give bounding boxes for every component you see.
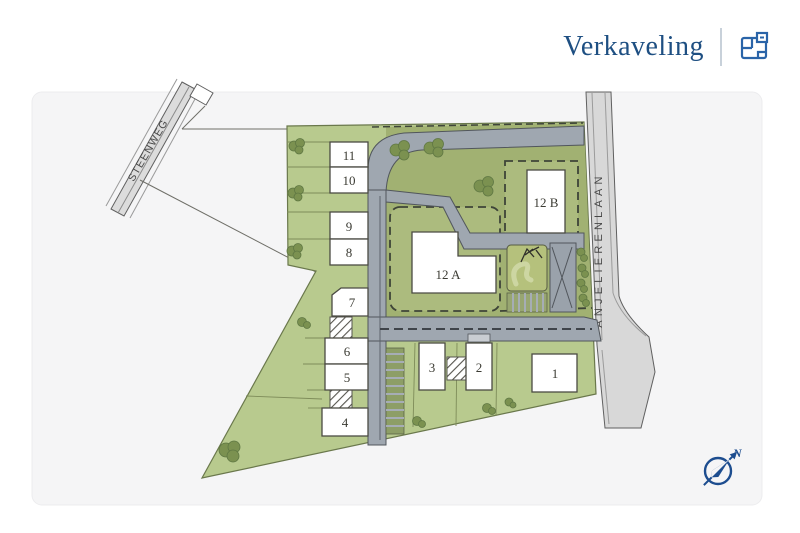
plot-label-12b: 12 B — [534, 195, 559, 210]
compass-north-label: N — [732, 446, 743, 460]
header: Verkaveling — [563, 28, 772, 66]
plot-11[interactable]: 11 — [330, 142, 368, 167]
plot-8[interactable]: 8 — [330, 239, 368, 265]
plot-7[interactable]: 7 — [332, 288, 368, 316]
plot-6[interactable]: 6 — [325, 338, 368, 364]
plot-3[interactable]: 3 — [419, 343, 445, 390]
playground — [507, 245, 547, 291]
parking-strip-west — [386, 348, 404, 434]
page-title: Verkaveling — [563, 31, 704, 63]
plot-label-9: 9 — [346, 219, 353, 234]
plot-12b[interactable]: 12 B — [527, 170, 565, 233]
plot-1[interactable]: 1 — [532, 354, 577, 392]
plot-9[interactable]: 9 — [330, 212, 368, 239]
ramp-area — [550, 243, 576, 312]
plot-label-8: 8 — [346, 245, 353, 260]
header-divider — [720, 28, 722, 66]
anjelierenlaan-label: ANJELIERENLAAN — [593, 172, 605, 327]
page: STEENWEG ANJELIERENLAAN — [0, 0, 800, 533]
plot-label-5: 5 — [344, 370, 351, 385]
plot-label-4: 4 — [342, 415, 349, 430]
plot-5[interactable]: 5 — [325, 364, 368, 390]
floorplan-icon — [738, 30, 772, 64]
plot-4[interactable]: 4 — [322, 408, 368, 436]
plot-label-6: 6 — [344, 344, 351, 359]
parking-strip-playground — [507, 293, 547, 312]
plot-label-10: 10 — [343, 173, 356, 188]
plot-label-2: 2 — [476, 360, 483, 375]
plot-label-3: 3 — [429, 360, 436, 375]
plot-label-11: 11 — [343, 148, 356, 163]
plot-label-7: 7 — [349, 295, 356, 310]
plot-10[interactable]: 10 — [330, 167, 368, 193]
plot-label-1: 1 — [552, 366, 559, 381]
plot-label-12a: 12 A — [436, 267, 462, 282]
site-plan-map: STEENWEG ANJELIERENLAAN — [0, 0, 800, 533]
driveway-stub — [468, 334, 490, 342]
plot-2[interactable]: 2 — [466, 343, 492, 390]
